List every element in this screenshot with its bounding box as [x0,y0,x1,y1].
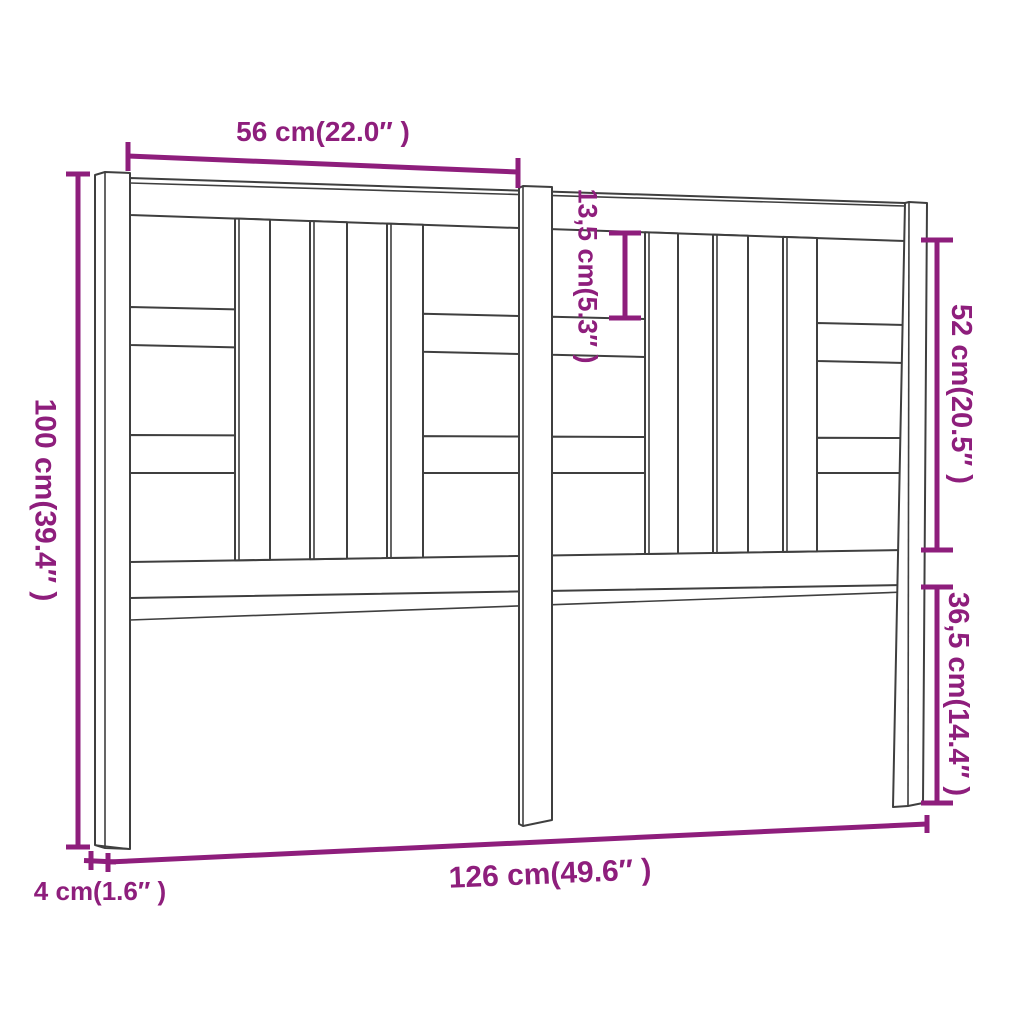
horizontal-slat [552,437,645,473]
dimension-total-width [108,815,927,862]
horizontal-slat [130,435,235,473]
dimension-upper-gap [609,233,641,318]
dimension-upper-gap-label: 13,5 cm(5.3″ ) [573,188,603,363]
horizontal-slat [130,307,235,347]
vertical-slat [645,232,678,554]
vertical-slat [387,224,423,558]
dimension-depth-label: 4 cm(1.6″ ) [34,876,166,906]
dimension-upper-side-label: 52 cm(20.5″ ) [945,304,977,484]
vertical-slat [310,221,347,559]
horizontal-slat [817,323,905,363]
left-post [95,172,130,849]
vertical-slat [713,235,748,553]
horizontal-slat [423,436,519,473]
dimension-leg-height-label: 36,5 cm(14.4″ ) [942,592,974,796]
headboard-drawing [95,172,927,849]
headboard-dimension-diagram: 56 cm(22.0″ ) 100 cm(39.4″ ) 4 cm(1.6″ )… [0,0,1024,1024]
dimension-height-label: 100 cm(39.4″ ) [29,399,62,602]
horizontal-slat [817,438,905,473]
dimension-top-width-label: 56 cm(22.0″ ) [236,116,410,147]
vertical-slat [235,219,270,561]
right-post [893,202,927,807]
dimension-total-width-label: 126 cm(49.6″ ) [448,853,652,894]
center-post [519,186,552,826]
dimension-height [66,174,90,847]
vertical-slat [783,237,817,552]
horizontal-slat [423,314,519,354]
